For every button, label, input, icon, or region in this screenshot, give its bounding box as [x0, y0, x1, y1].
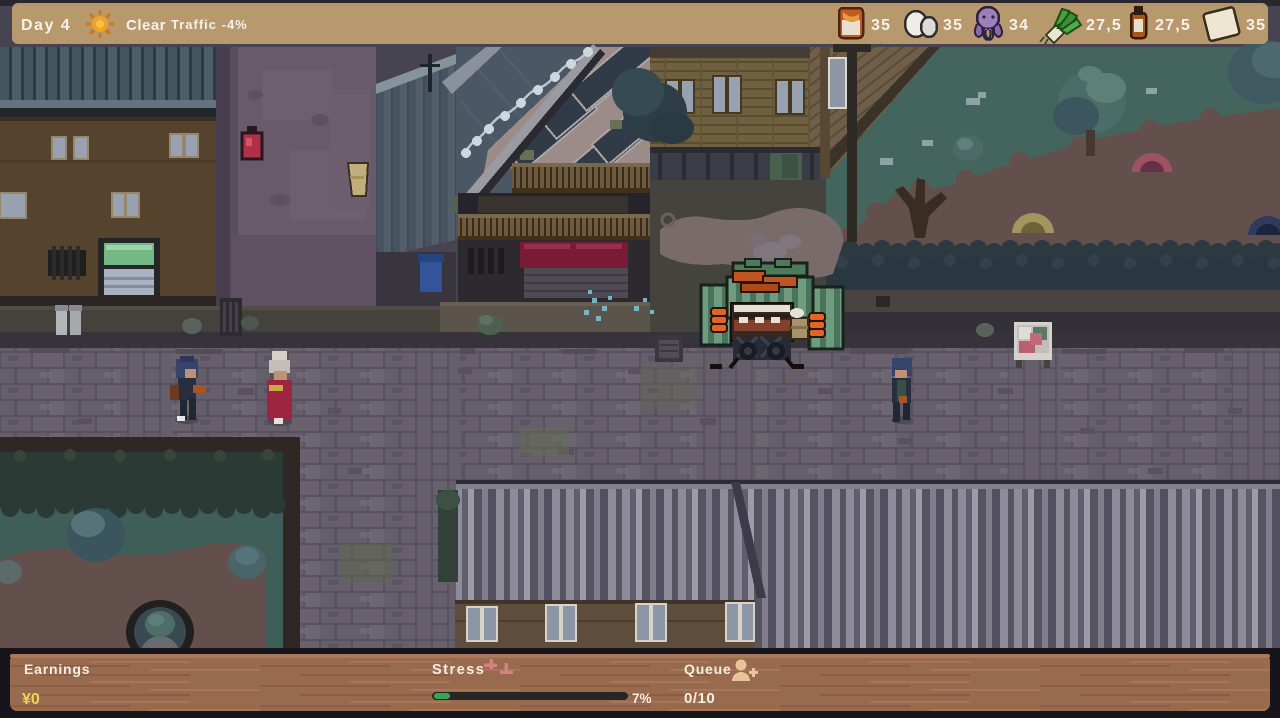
svg-text:0/10: 0/10	[684, 690, 715, 707]
svg-text:¥0: ¥0	[22, 691, 40, 708]
svg-text:35: 35	[1246, 17, 1266, 34]
svg-text:Traffic -4%: Traffic -4%	[171, 17, 248, 32]
svg-text:Stress: Stress	[432, 662, 485, 678]
svg-text:27,5: 27,5	[1086, 17, 1122, 34]
svg-text:Day 4: Day 4	[21, 17, 71, 34]
svg-text:34: 34	[1009, 17, 1029, 34]
svg-text:7%: 7%	[632, 691, 652, 706]
svg-text:27,5: 27,5	[1155, 17, 1191, 34]
svg-text:Queue: Queue	[684, 661, 732, 677]
svg-text:Earnings: Earnings	[24, 661, 90, 677]
svg-text:35: 35	[871, 17, 891, 34]
svg-text:Clear: Clear	[126, 17, 166, 34]
svg-text:35: 35	[943, 17, 963, 34]
